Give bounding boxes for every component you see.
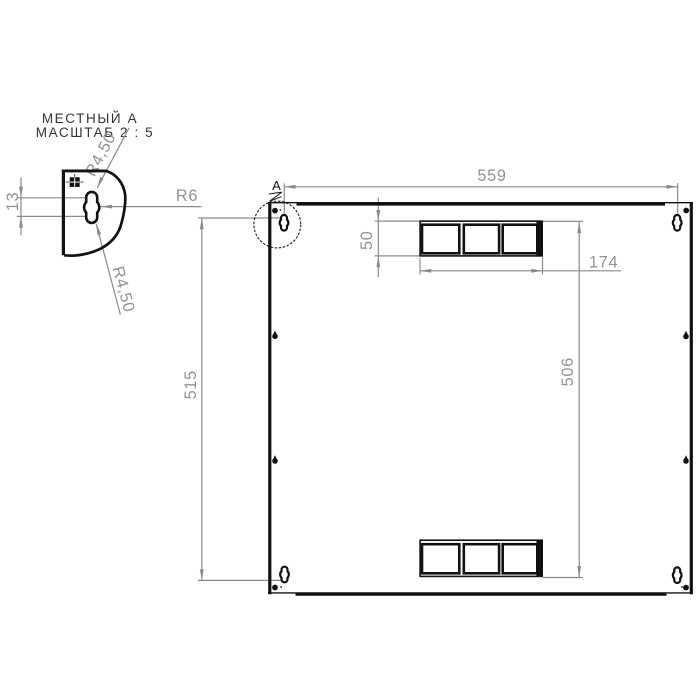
svg-text:13: 13 — [4, 192, 22, 212]
svg-text:R6: R6 — [176, 187, 198, 205]
svg-text:МАСШТАБ 2 : 5: МАСШТАБ 2 : 5 — [36, 125, 155, 140]
svg-text:515: 515 — [182, 370, 200, 399]
svg-text:174: 174 — [589, 253, 618, 271]
svg-text:559: 559 — [477, 167, 506, 185]
svg-text:МЕСТНЫЙ А: МЕСТНЫЙ А — [42, 111, 138, 126]
svg-text:506: 506 — [559, 357, 577, 386]
svg-text:50: 50 — [358, 230, 376, 250]
svg-text:А: А — [272, 178, 281, 193]
